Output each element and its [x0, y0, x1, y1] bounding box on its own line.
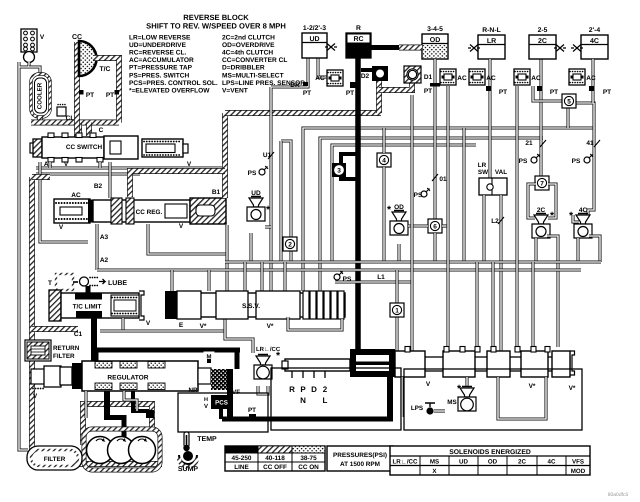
svg-text:T: T [48, 280, 52, 287]
svg-text:PT: PT [499, 89, 507, 96]
svg-text:MS: MS [430, 459, 439, 466]
svg-text:UD: UD [251, 190, 261, 197]
svg-text:UD: UD [309, 36, 319, 43]
svg-text:TEMP: TEMP [197, 436, 217, 443]
svg-text:2C: 2C [537, 207, 546, 214]
svg-text:PT: PT [603, 89, 611, 96]
svg-text:FILTER: FILTER [44, 456, 66, 463]
svg-text:V: V [40, 34, 45, 41]
svg-text:S.S.V.: S.S.V. [242, 303, 260, 310]
svg-text:6: 6 [433, 223, 437, 230]
svg-text:R-N-L: R-N-L [482, 27, 501, 34]
svg-text:B2: B2 [94, 183, 103, 190]
svg-text:4C=4th CLUTCH: 4C=4th CLUTCH [222, 50, 273, 57]
svg-text:V*: V* [267, 323, 274, 330]
svg-text:SHIFT TO REV. W/SPEED OVER 8 M: SHIFT TO REV. W/SPEED OVER 8 MPH [146, 22, 286, 31]
svg-text:LR=LOW REVERSE: LR=LOW REVERSE [129, 35, 191, 42]
svg-text:CL: CL [66, 115, 75, 122]
svg-text:D1: D1 [424, 74, 433, 81]
svg-text:PT: PT [424, 88, 432, 95]
svg-text:38-75: 38-75 [300, 455, 317, 462]
svg-text:LR∟/CC: LR∟/CC [393, 459, 418, 466]
svg-text:REGULATOR: REGULATOR [107, 375, 148, 382]
svg-text:T/C: T/C [100, 66, 111, 73]
svg-text:PRESSURES(PSI): PRESSURES(PSI) [333, 452, 387, 459]
svg-text:2: 2 [323, 385, 328, 394]
svg-text:45-250: 45-250 [232, 455, 252, 462]
svg-text:C1: C1 [74, 331, 83, 338]
svg-text:21: 21 [525, 140, 533, 147]
svg-text:PT=PRESSURE TAP: PT=PRESSURE TAP [129, 65, 193, 72]
svg-text:D: D [311, 385, 317, 394]
svg-text:3-4-5: 3-4-5 [427, 26, 443, 33]
svg-text:N: N [300, 396, 306, 405]
svg-text:5: 5 [567, 98, 571, 105]
svg-text:SW: SW [478, 169, 488, 176]
svg-text:RC: RC [353, 36, 363, 43]
svg-text:CC=CONVERTER CL: CC=CONVERTER CL [222, 57, 287, 64]
svg-text:AC: AC [531, 75, 541, 82]
svg-text:DR: DR [290, 82, 300, 89]
svg-text:VAL: VAL [495, 169, 507, 176]
svg-text:A2: A2 [100, 257, 109, 264]
svg-text:OD: OD [488, 459, 498, 466]
svg-text:*=ELEVATED OVERFLOW: *=ELEVATED OVERFLOW [129, 87, 210, 94]
svg-text:1: 1 [395, 307, 399, 314]
svg-text:CC ON: CC ON [298, 464, 319, 471]
svg-text:1-2/2'-3: 1-2/2'-3 [303, 25, 326, 32]
svg-text:RC=REVERSE CL.: RC=REVERSE CL. [129, 50, 187, 57]
svg-text:SOLENOIDS ENERGIZED: SOLENOIDS ENERGIZED [449, 449, 531, 456]
svg-text:MS=MULTI-SELECT: MS=MULTI-SELECT [222, 72, 284, 79]
svg-text:MS: MS [447, 399, 456, 406]
svg-text:FILTER: FILTER [53, 353, 75, 360]
svg-text:PS: PS [248, 170, 257, 177]
svg-text:UD=UNDERDRIVE: UD=UNDERDRIVE [129, 42, 187, 49]
svg-text:LPS: LPS [411, 405, 423, 412]
svg-text:CC OFF: CC OFF [263, 464, 287, 471]
svg-text:V*: V* [569, 385, 576, 392]
svg-text:2: 2 [288, 241, 292, 248]
svg-text:CC SWITCH: CC SWITCH [66, 144, 103, 151]
svg-text:PS: PS [343, 276, 352, 283]
svg-text:COOLER: COOLER [37, 82, 44, 109]
svg-text:D2: D2 [361, 73, 370, 80]
svg-text:PCS=PRES. CONTROL SOL.: PCS=PRES. CONTROL SOL. [129, 80, 218, 87]
svg-text:AT 1500 RPM: AT 1500 RPM [340, 461, 380, 468]
svg-text:V*: V* [529, 383, 536, 390]
svg-text:AC: AC [586, 75, 596, 82]
svg-text:V: V [179, 223, 184, 230]
svg-text:4C: 4C [548, 459, 556, 466]
svg-text:U1: U1 [263, 152, 272, 159]
svg-text:PS: PS [519, 158, 528, 165]
svg-text:01: 01 [439, 176, 447, 183]
svg-text:2C: 2C [518, 459, 526, 466]
svg-text:OD=OVERDRIVE: OD=OVERDRIVE [222, 42, 275, 49]
svg-text:PS: PS [572, 158, 581, 165]
svg-text:AC: AC [315, 75, 325, 82]
svg-text:V: V [59, 224, 64, 231]
svg-text:V: V [33, 393, 38, 400]
svg-text:PT: PT [106, 92, 114, 99]
svg-text:PS: PS [414, 192, 423, 199]
svg-text:PCS: PCS [215, 400, 228, 407]
svg-text:L1: L1 [377, 274, 385, 281]
svg-text:L: L [323, 396, 328, 405]
svg-text:OD: OD [430, 37, 441, 44]
svg-text:R: R [289, 385, 295, 394]
svg-text:4C: 4C [579, 207, 588, 214]
svg-text:2'-4: 2'-4 [589, 27, 601, 34]
svg-text:A3: A3 [100, 234, 109, 241]
svg-text:UD: UD [459, 459, 468, 466]
svg-text:V=VENT: V=VENT [222, 87, 248, 94]
svg-text:T/C LIMIT: T/C LIMIT [73, 304, 102, 311]
svg-text:LINE: LINE [234, 464, 249, 471]
svg-text:C: C [99, 127, 104, 134]
svg-text:H: H [204, 397, 208, 403]
svg-text:LUBE: LUBE [108, 280, 127, 287]
svg-text:AC: AC [486, 75, 496, 82]
svg-text:V*: V* [200, 323, 207, 330]
svg-text:PT: PT [86, 92, 94, 99]
svg-text:AC: AC [457, 75, 467, 82]
svg-text:7: 7 [540, 180, 544, 187]
svg-text:2-5: 2-5 [538, 27, 548, 34]
svg-text:LR: LR [478, 162, 487, 169]
svg-text:VFS: VFS [572, 459, 584, 466]
svg-text:CC REG.: CC REG. [136, 209, 163, 216]
svg-text:80a0dfc5: 80a0dfc5 [608, 492, 629, 498]
svg-text:B1: B1 [212, 189, 221, 196]
svg-text:SUMP: SUMP [178, 466, 199, 473]
svg-text:4C: 4C [590, 38, 599, 45]
svg-text:MOD: MOD [571, 468, 586, 475]
svg-text:LR: LR [487, 38, 496, 45]
svg-text:PT: PT [346, 90, 354, 97]
svg-text:PT: PT [550, 89, 558, 96]
svg-text:41: 41 [586, 140, 594, 147]
svg-text:V: V [426, 381, 431, 388]
svg-text:OD: OD [394, 204, 404, 211]
svg-text:V: V [146, 320, 151, 327]
svg-text:PT: PT [248, 407, 256, 414]
svg-text:P: P [300, 385, 306, 394]
svg-text:R: R [356, 25, 361, 32]
svg-text:AC: AC [71, 192, 81, 199]
svg-text:V: V [204, 403, 208, 410]
svg-text:E: E [179, 322, 184, 329]
svg-text:PT: PT [303, 90, 311, 97]
svg-text:RETURN: RETURN [53, 345, 80, 352]
svg-text:2C: 2C [538, 38, 547, 45]
svg-text:D=DRIBBLER: D=DRIBBLER [222, 65, 265, 72]
svg-text:4: 4 [382, 157, 386, 164]
svg-text:AC=ACCUMULATOR: AC=ACCUMULATOR [129, 57, 194, 64]
svg-text:2C=2nd CLUTCH: 2C=2nd CLUTCH [222, 35, 275, 42]
svg-text:40-118: 40-118 [265, 455, 285, 462]
svg-text:PS=PRES. SWITCH: PS=PRES. SWITCH [129, 72, 190, 79]
svg-text:3: 3 [337, 167, 341, 174]
